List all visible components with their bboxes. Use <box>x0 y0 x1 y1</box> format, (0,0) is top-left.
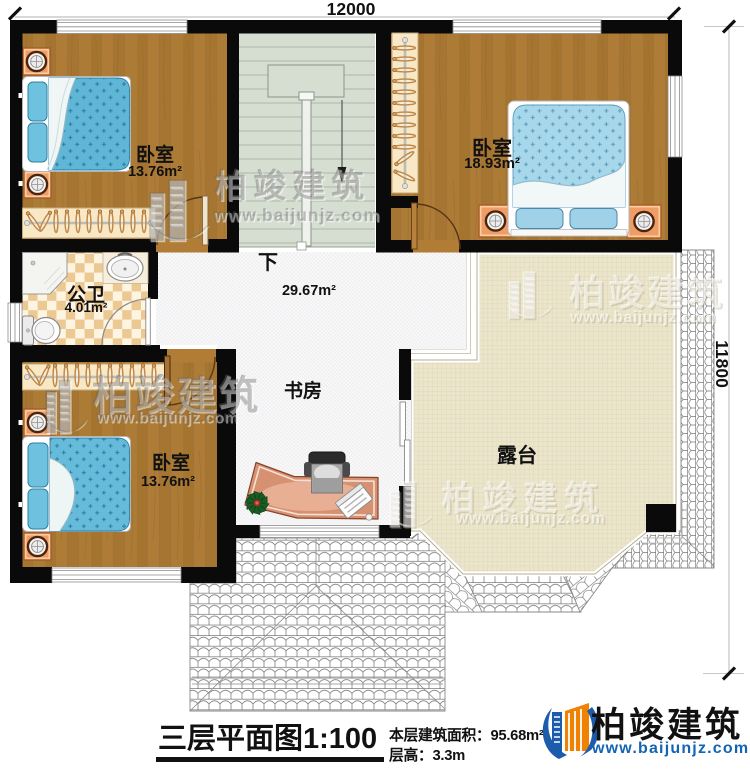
svg-text:卧室: 卧室 <box>152 451 190 474</box>
svg-text:13.76m²: 13.76m² <box>128 164 182 180</box>
svg-text:www.baijunjz.com: www.baijunjz.com <box>212 205 380 225</box>
svg-text:12000: 12000 <box>327 0 376 19</box>
svg-text:18.93m²: 18.93m² <box>464 155 520 172</box>
svg-text:层高：3.3m: 层高：3.3m <box>389 746 465 764</box>
svg-text:露台: 露台 <box>497 443 537 467</box>
svg-text:书房: 书房 <box>284 379 322 402</box>
svg-text:4.01m²: 4.01m² <box>65 300 108 315</box>
svg-text:柏竣建筑: 柏竣建筑 <box>569 272 725 313</box>
svg-text:三层平面图1:100: 三层平面图1:100 <box>158 723 377 755</box>
svg-text:www.baijunjz.com: www.baijunjz.com <box>455 510 606 527</box>
svg-text:柏竣建筑: 柏竣建筑 <box>591 705 743 745</box>
svg-text:www.baijunjz.com: www.baijunjz.com <box>95 409 238 426</box>
svg-text:下: 下 <box>258 252 278 274</box>
svg-text:卧室: 卧室 <box>136 143 174 166</box>
svg-text:11800: 11800 <box>712 340 732 388</box>
svg-text:13.76m²: 13.76m² <box>141 474 195 490</box>
svg-text:www.baijunjz.com: www.baijunjz.com <box>569 309 716 326</box>
svg-text:www.baijunjz.com: www.baijunjz.com <box>591 740 749 757</box>
svg-text:本层建筑面积：95.68m²: 本层建筑面积：95.68m² <box>389 726 544 744</box>
svg-text:柏竣建筑: 柏竣建筑 <box>214 167 370 204</box>
svg-text:29.67m²: 29.67m² <box>282 283 336 299</box>
